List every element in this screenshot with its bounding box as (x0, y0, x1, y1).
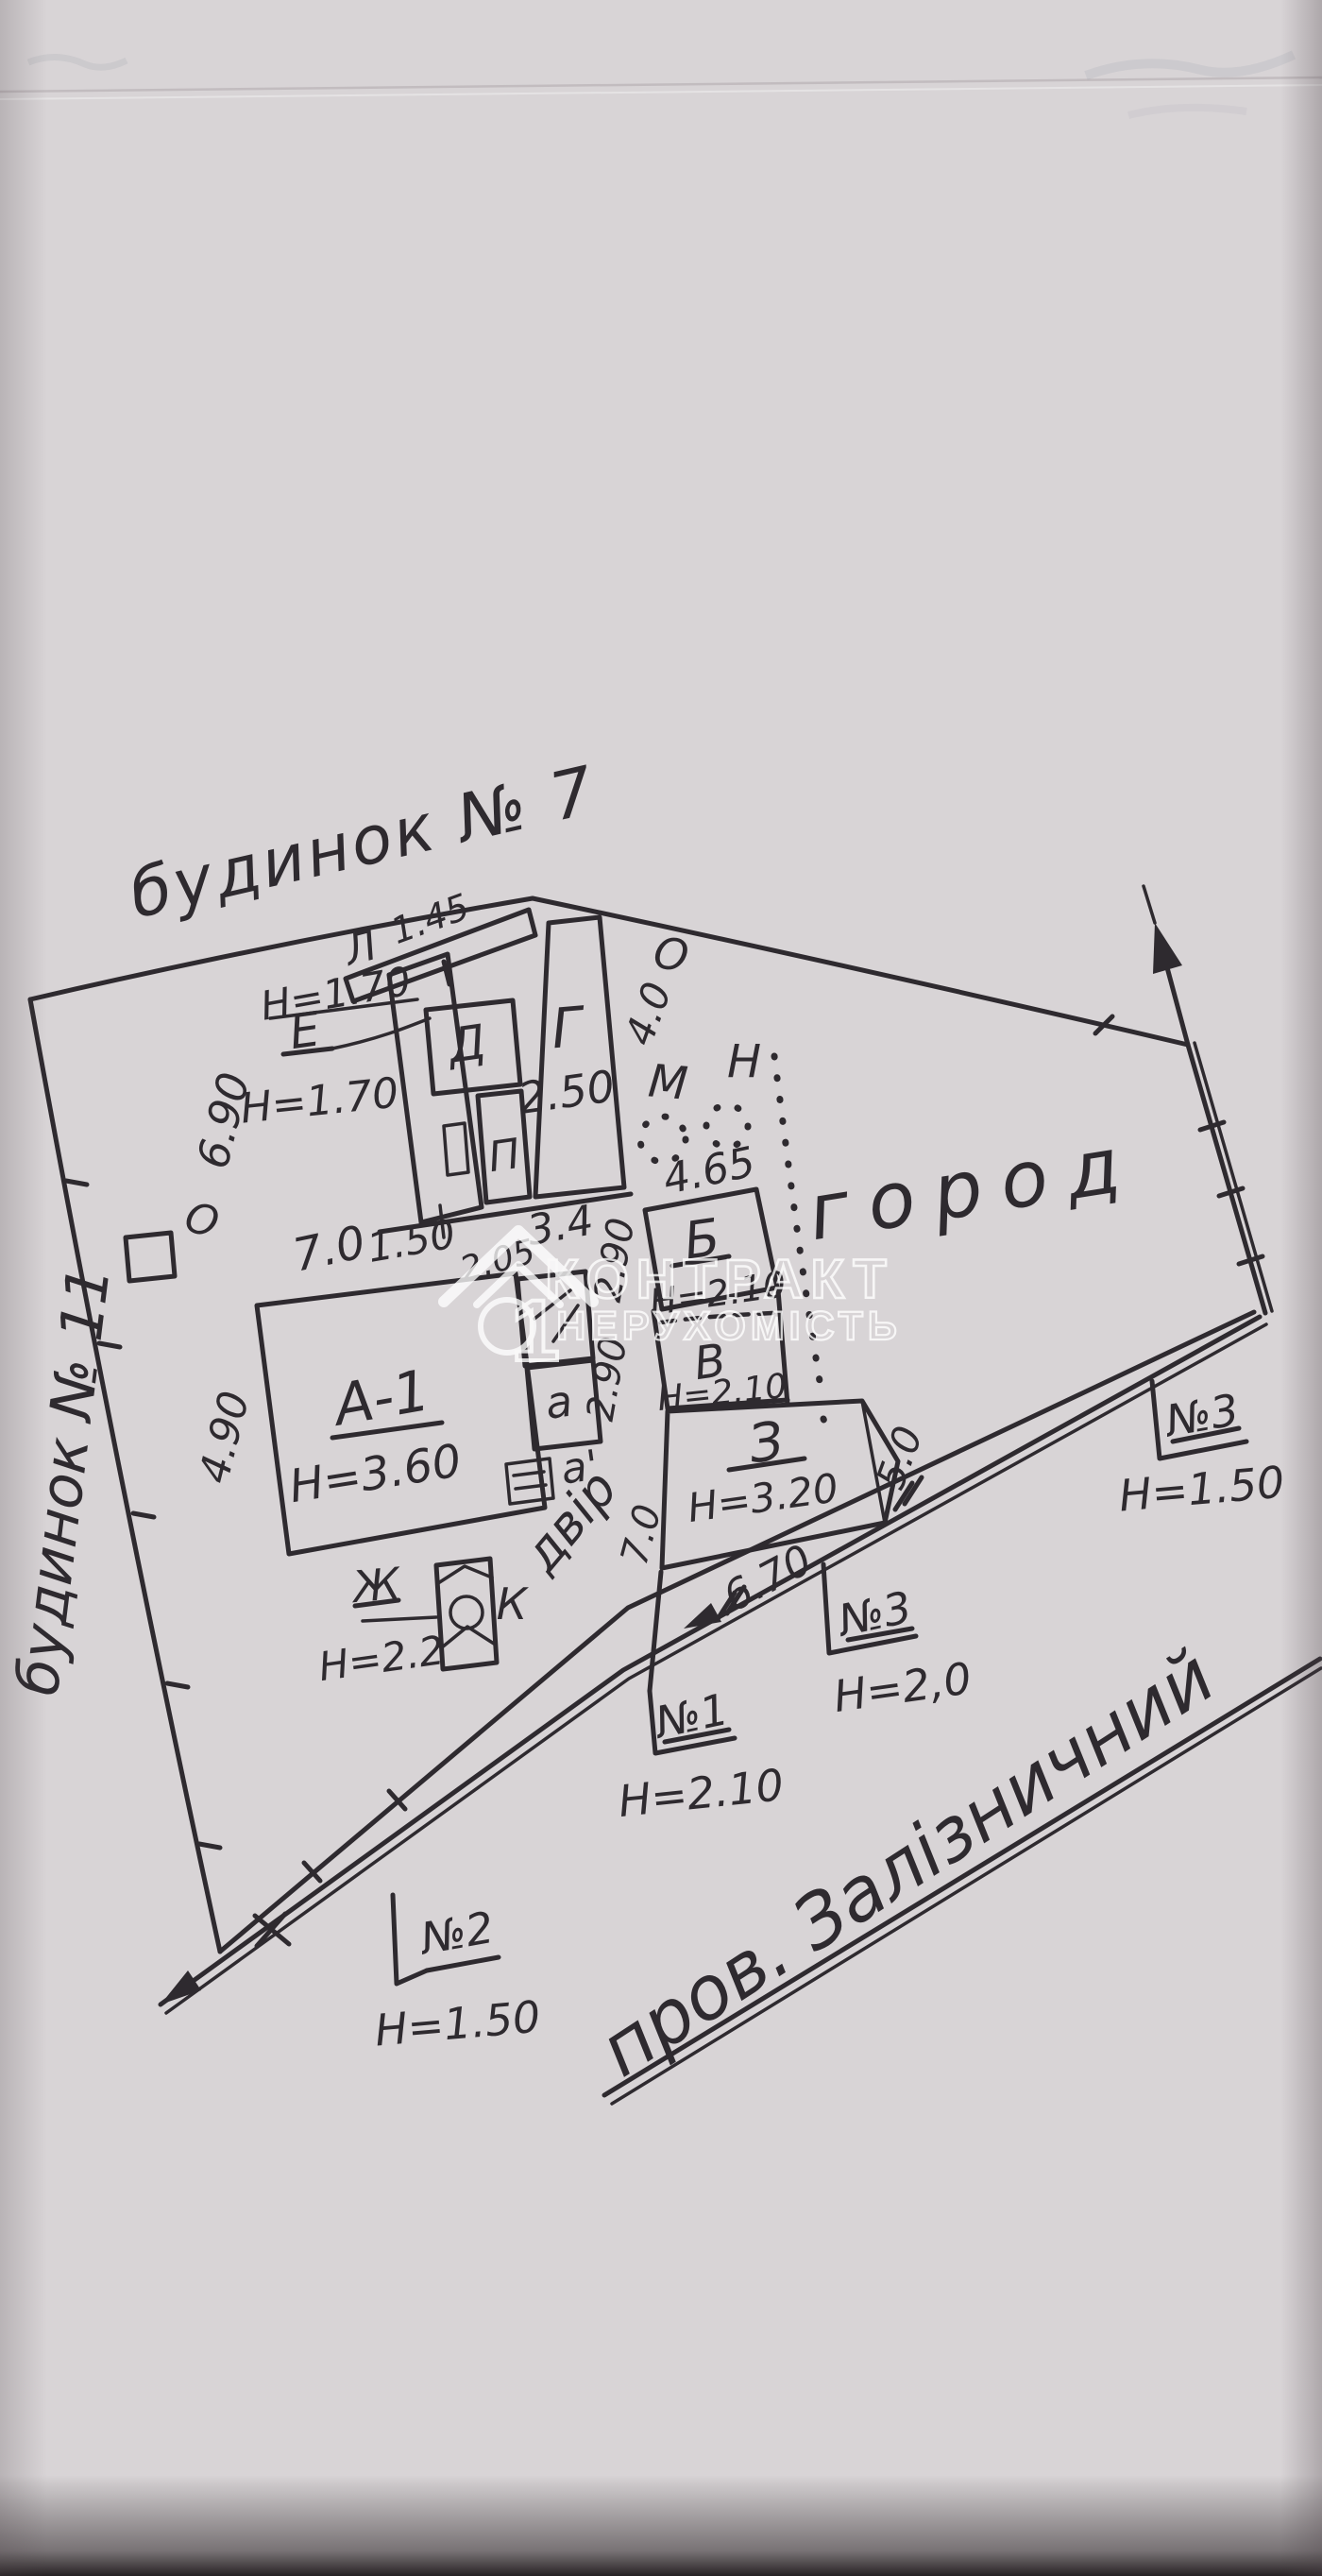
zh-leader-line (363, 1617, 436, 1621)
fence-n3-mid-height: Н=2,0 (831, 1652, 975, 1722)
well-circle (450, 1596, 483, 1629)
g-value-label: 2.50 (515, 1060, 618, 1124)
o-shed-label: О (650, 927, 692, 982)
shed-m-label: М (646, 1054, 689, 1110)
cluster-height-dim: 6.90 (187, 1067, 260, 1173)
site-plan-drawing: будинок № 7 будинок № 11 пров. Залізничн… (0, 0, 1322, 2576)
fence-n3-right-label: №3 (1160, 1384, 1243, 1447)
fence-n1-height: Н=2.10 (616, 1759, 786, 1827)
building-p-label: П (485, 1130, 523, 1182)
building-k-label: К (497, 1578, 530, 1629)
garden-label: город (802, 1117, 1144, 1258)
cluster-w1-dim: 1.50 (364, 1210, 459, 1271)
b-top-dim: 4.65 (659, 1138, 759, 1204)
n1-leader (650, 1572, 661, 1691)
a1-top-dim: 7.0 (289, 1216, 370, 1283)
street-arrow-head (161, 1970, 201, 2005)
ghost-writing (1128, 108, 1246, 115)
o-well-label: О (179, 1193, 224, 1248)
annex-a-prime-label: а' (558, 1442, 602, 1494)
a1-height-label: Н=3.60 (286, 1434, 466, 1513)
right-boundary-line (1188, 1045, 1265, 1313)
e-height-top-label: Н=1.70 (257, 958, 414, 1030)
zh-height-label: Н=2.2 (315, 1627, 447, 1690)
watermark-brand-line2: НЕРУХОМІСТЬ (556, 1304, 902, 1349)
l-dim-label: 1.45 (385, 886, 475, 952)
o-shed-dim: 4.0 (616, 976, 681, 1051)
building-z-label: З (745, 1410, 788, 1476)
north-arrow-head (1153, 923, 1182, 974)
neighbor-top-label: будинок № 7 (123, 751, 604, 933)
ghost-writing (1086, 55, 1294, 76)
o-square-outline (126, 1233, 175, 1281)
annex-a-prime-outline (506, 1459, 553, 1504)
annex-a-label: а (542, 1374, 575, 1428)
e-height-bottom-label: Н=1.70 (238, 1068, 400, 1133)
building-zh-label: Ж (348, 1558, 404, 1613)
z-height-label: Н=3.20 (685, 1464, 841, 1531)
watermark-brand-line1: КОНТРАКТ (545, 1249, 894, 1310)
a1-side-dim: 4.90 (190, 1387, 259, 1488)
e-leader-line (332, 1018, 430, 1049)
fence-n2-height: Н=1.50 (373, 1991, 543, 2056)
site-plan-photo: будинок № 7 будинок № 11 пров. Залізничн… (0, 0, 1322, 2576)
building-p-door (444, 1123, 468, 1175)
street-mid-arrow (684, 1603, 721, 1629)
building-d-label: Д (443, 1015, 489, 1074)
plan-labels: будинок № 7 будинок № 11 пров. Залізничн… (3, 751, 1287, 2094)
fence-n2-label: №2 (415, 1902, 498, 1965)
fence-n3-right-height: Н=1.50 (1117, 1457, 1287, 1522)
paper-texture (0, 55, 1322, 115)
shed-n-label: Н (727, 1035, 761, 1088)
building-g-label: Г (549, 994, 589, 1061)
